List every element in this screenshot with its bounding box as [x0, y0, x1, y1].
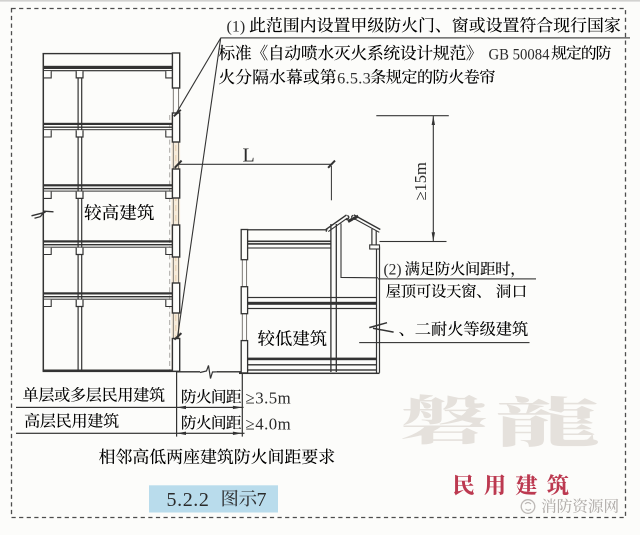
- svg-text:(2): (2): [384, 262, 402, 279]
- svg-text:GB 50084: GB 50084: [489, 46, 550, 63]
- svg-text:5.2.2: 5.2.2: [167, 489, 210, 511]
- svg-text:≥15m: ≥15m: [411, 162, 430, 201]
- svg-text:7: 7: [257, 489, 267, 511]
- svg-text:6.5.3: 6.5.3: [337, 69, 371, 87]
- svg-text:L: L: [243, 145, 255, 167]
- svg-text:≥4.0m: ≥4.0m: [246, 415, 292, 434]
- svg-text:≥3.5m: ≥3.5m: [246, 389, 292, 408]
- svg-text:(1): (1): [227, 19, 246, 36]
